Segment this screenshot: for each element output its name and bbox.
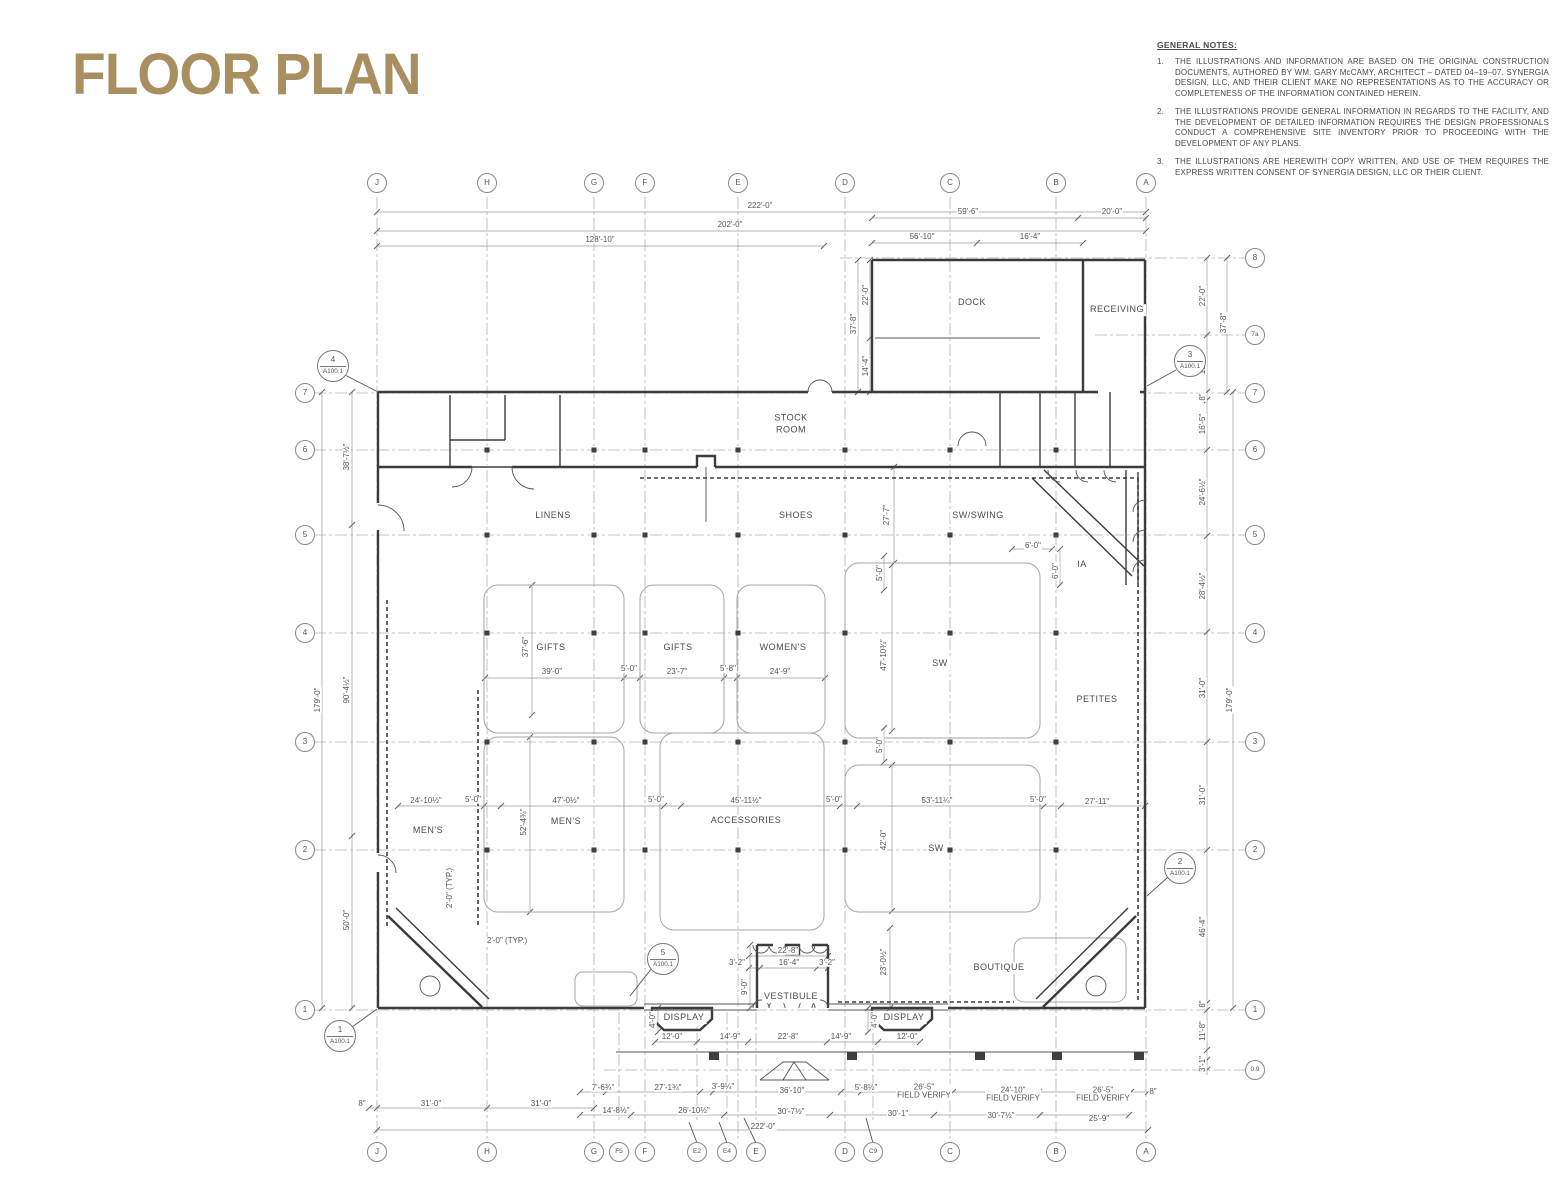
grid-bubble: 4 — [1245, 623, 1265, 643]
dim-label: 2'-0" (TYP.) — [446, 867, 454, 909]
dim-label: 5'-8" — [719, 665, 737, 673]
dim-label: 50'-0" — [343, 909, 351, 931]
dim-label: 6'-0" — [1052, 562, 1060, 580]
grid-bubble: C — [940, 1142, 960, 1162]
dim-label: 8" — [1148, 1088, 1157, 1096]
dim-label: 59'-6" — [957, 208, 979, 216]
room-label: LINENS — [533, 510, 573, 522]
detail-callout: 3A100.1 — [1174, 345, 1206, 377]
dim-label: 2'-0" (TYP.) — [486, 937, 528, 945]
grid-bubble: F — [635, 1142, 655, 1162]
grid-bubble: H — [477, 1142, 497, 1162]
grid-bubble: J — [367, 173, 387, 193]
grid-bubble: 6 — [1245, 440, 1265, 460]
grid-bubble: D — [835, 173, 855, 193]
dim-label: 42'-0" — [880, 829, 888, 851]
dim-label: 5'-8½" — [854, 1084, 879, 1092]
dim-label: 5'-0" — [647, 796, 665, 804]
dim-label: 31'-0" — [1199, 784, 1207, 806]
dim-label: 12'-0" — [661, 1033, 683, 1041]
room-label: ACCESSORIES — [709, 815, 784, 827]
dim-label: 4'-0" — [871, 1011, 879, 1029]
dim-label: 4'-0" — [649, 1011, 657, 1029]
dim-label: 8" — [1199, 392, 1207, 401]
dim-label: 14'-9" — [719, 1033, 741, 1041]
room-label: VESTIBULE — [762, 991, 820, 1003]
room-label: MEN'S — [549, 816, 583, 828]
grid-bubble: 6 — [295, 440, 315, 460]
dim-label-note: FIELD VERIFY — [897, 1092, 951, 1100]
grid-bubble: B — [1046, 173, 1066, 193]
room-label: IA — [1075, 559, 1089, 571]
callout-number: 5 — [650, 948, 676, 960]
dim-label: 46'-4" — [1199, 916, 1207, 938]
dim-label: 37'-8" — [1220, 312, 1228, 334]
dim-label: 30'-7½" — [776, 1108, 805, 1116]
grid-bubble: 7a — [1245, 325, 1265, 345]
dim-label: 37'-6" — [522, 636, 530, 658]
dim-label: 3'-2" — [728, 959, 746, 967]
callout-number: 3 — [1177, 350, 1203, 362]
dim-label: 24'-9" — [769, 668, 791, 676]
dim-label: 11'-8" — [1199, 1020, 1207, 1042]
dim-label: 25'-9" — [1088, 1115, 1110, 1123]
dim-label: 31'-0" — [530, 1100, 552, 1108]
room-label: RECEIVING — [1088, 304, 1146, 316]
room-label: SW — [926, 843, 946, 855]
callout-sheet: A100.1 — [1180, 362, 1200, 371]
dim-label: 5'-0" — [876, 564, 884, 582]
dim-label: 26'-5"FIELD VERIFY — [1075, 1087, 1131, 1104]
dim-label: 22'-0" — [862, 284, 870, 306]
dim-label: 222'-0" — [750, 1123, 777, 1131]
grid-bubble: G — [584, 1142, 604, 1162]
dim-label: 14'-4" — [862, 355, 870, 377]
grid-bubble: 7 — [295, 383, 315, 403]
callout-sheet: A100.1 — [1170, 869, 1190, 878]
grid-bubble: 4 — [295, 623, 315, 643]
dim-label: 6'-0" — [1024, 542, 1042, 550]
dim-label: 179'-0" — [314, 687, 322, 714]
grid-bubble: 2 — [1245, 840, 1265, 860]
dim-label: 24'-10½" — [409, 797, 443, 805]
grid-bubble: H — [477, 173, 497, 193]
grid-bubble: A — [1136, 1142, 1156, 1162]
dim-label: 5'-0" — [620, 665, 638, 673]
room-label: GIFTS — [535, 642, 568, 654]
grid-bubble: C — [940, 173, 960, 193]
dim-label: 202'-0" — [717, 221, 744, 229]
room-label: DISPLAY — [882, 1012, 927, 1024]
dim-label: 47'-0½" — [551, 797, 580, 805]
dim-label: 5'-0" — [464, 796, 482, 804]
dim-label-note: FIELD VERIFY — [986, 1095, 1040, 1103]
detail-callout: 2A100.1 — [1164, 852, 1196, 884]
dim-label: 16'-4" — [778, 959, 800, 967]
room-label: SW — [930, 658, 950, 670]
grid-bubble: C9 — [863, 1142, 883, 1162]
grid-bubble: E2 — [687, 1142, 707, 1162]
dim-label: 36'-10" — [779, 1087, 806, 1095]
dim-label: 9'-0" — [741, 978, 749, 996]
dim-label: 5'-0" — [825, 796, 843, 804]
room-label: WOMEN'S — [758, 642, 809, 654]
grid-bubble: G — [584, 173, 604, 193]
dim-label: 16'-5" — [1199, 413, 1207, 435]
dim-label: 22'-0" — [1199, 285, 1207, 307]
dim-label: 26'-5"FIELD VERIFY — [896, 1084, 952, 1101]
grid-bubble: 3 — [1245, 732, 1265, 752]
dim-label: 22'-8" — [777, 947, 799, 955]
dim-label: 12'-0" — [896, 1033, 918, 1041]
dim-label: 45'-11½" — [730, 797, 763, 805]
callout-number: 2 — [1167, 857, 1193, 869]
dim-label: 37'-8" — [850, 313, 858, 335]
dim-label: 22'-8" — [777, 1033, 799, 1041]
dim-label: 30'-7½" — [986, 1112, 1015, 1120]
grid-bubble: 5 — [1245, 525, 1265, 545]
dim-label: 53'-11¼" — [921, 797, 954, 805]
grid-bubble: A — [1136, 173, 1156, 193]
floor-plan-sheet: FLOOR PLAN GENERAL NOTES: 1.THE ILLUSTRA… — [0, 0, 1553, 1200]
grid-bubble: E — [728, 173, 748, 193]
grid-bubble: D — [835, 1142, 855, 1162]
dim-label: 24'-10"FIELD VERIFY — [985, 1087, 1041, 1104]
dim-label: 24'-6½" — [1199, 477, 1207, 506]
dim-label: 47'-10¾" — [880, 638, 888, 672]
dim-label: 7'-6¾" — [591, 1084, 616, 1092]
grid-bubble: 8 — [1245, 248, 1265, 268]
dim-label: 23'-0½" — [880, 947, 888, 976]
dim-label: 128'-10" — [584, 236, 615, 244]
dim-label: 20'-0" — [1101, 208, 1123, 216]
dim-label: 30'-1" — [887, 1110, 909, 1118]
grid-bubble: B — [1046, 1142, 1066, 1162]
dim-label: 14'-9" — [830, 1033, 852, 1041]
dim-label: 28'-4½" — [1199, 571, 1207, 600]
dim-label: 27'-1¾" — [653, 1084, 682, 1092]
callout-number: 4 — [320, 355, 346, 367]
room-label: DISPLAY — [662, 1012, 707, 1024]
dim-label: 31'-0" — [1199, 677, 1207, 699]
callout-sheet: A100.1 — [330, 1037, 350, 1046]
dim-label: 222'-0" — [747, 202, 774, 210]
detail-callout: 4A100.1 — [317, 350, 349, 382]
room-label: MEN'S — [411, 825, 445, 837]
dim-label: 3'-9¼" — [711, 1083, 736, 1091]
grid-bubble: 0.9 — [1245, 1060, 1265, 1080]
grid-bubble: F — [635, 173, 655, 193]
annotation-labels: JHGFEDCBAJHGF5FE2E4EDC9CBA87a77665544332… — [0, 0, 1553, 1200]
callout-sheet: A100.1 — [653, 960, 673, 969]
dim-label: 5'-0" — [1029, 796, 1047, 804]
grid-bubble: F5 — [609, 1142, 629, 1162]
room-label: BOUTIQUE — [971, 962, 1026, 974]
room-label: STOCK ROOM — [772, 412, 809, 435]
room-label: SW/SWING — [950, 510, 1006, 522]
dim-label: 31'-0" — [420, 1100, 442, 1108]
dim-label: 8" — [1199, 999, 1207, 1008]
dim-label: 27'-7" — [883, 504, 891, 526]
dim-label: 52'-4¾" — [520, 807, 528, 836]
detail-callout: 5A100.1 — [647, 943, 679, 975]
dim-label: 56'-10" — [909, 233, 936, 241]
dim-label: 5'-0" — [876, 736, 884, 754]
dim-label-note: FIELD VERIFY — [1076, 1095, 1130, 1103]
grid-bubble: 3 — [295, 732, 315, 752]
dim-label: 3'-1" — [1199, 1055, 1207, 1073]
grid-bubble: J — [367, 1142, 387, 1162]
dim-label: 3'-2" — [818, 959, 836, 967]
grid-bubble: 7 — [1245, 383, 1265, 403]
room-label: DOCK — [956, 297, 988, 309]
room-label: PETITES — [1074, 694, 1119, 706]
room-label: GIFTS — [662, 642, 695, 654]
grid-bubble: 1 — [1245, 1000, 1265, 1020]
dim-label: 38'-7½" — [343, 442, 351, 471]
dim-label: 16'-4" — [1019, 233, 1041, 241]
grid-bubble: 5 — [295, 525, 315, 545]
grid-bubble: E — [746, 1142, 766, 1162]
dim-label: 8" — [357, 1100, 366, 1108]
callout-number: 1 — [327, 1025, 353, 1037]
dim-label: 23'-7" — [666, 668, 688, 676]
dim-label: 179'-0" — [1226, 687, 1234, 714]
detail-callout: 1A100.1 — [324, 1020, 356, 1052]
callout-sheet: A100.1 — [323, 367, 343, 376]
dim-label: 27'-11" — [1084, 798, 1110, 806]
room-label: SHOES — [777, 510, 815, 522]
dim-label: 90'-4½" — [343, 675, 351, 704]
dim-label: 14'-8½" — [601, 1107, 630, 1115]
grid-bubble: 1 — [295, 1000, 315, 1020]
dim-label: 26'-10½" — [677, 1107, 711, 1115]
dim-label: 39'-0" — [541, 668, 563, 676]
grid-bubble: E4 — [717, 1142, 737, 1162]
grid-bubble: 2 — [295, 840, 315, 860]
